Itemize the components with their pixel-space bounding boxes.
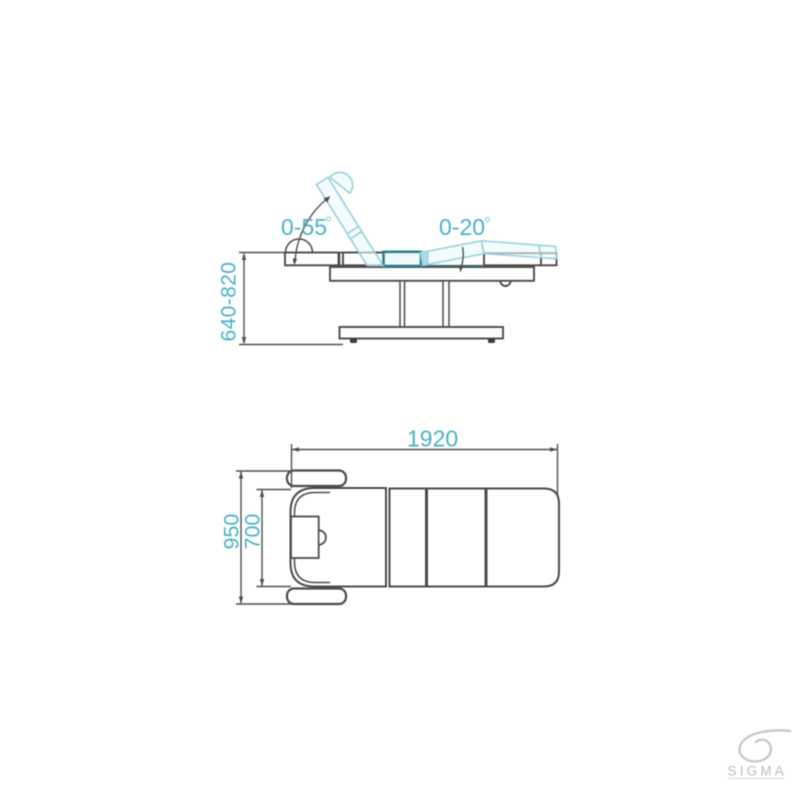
svg-text:640-820: 640-820 [218, 262, 241, 342]
svg-text:1920: 1920 [407, 426, 458, 452]
svg-text:0-55: 0-55 [281, 214, 327, 240]
svg-text:SIGMA: SIGMA [728, 764, 788, 779]
svg-text:0-20: 0-20 [439, 214, 485, 240]
svg-text:700: 700 [241, 514, 265, 550]
